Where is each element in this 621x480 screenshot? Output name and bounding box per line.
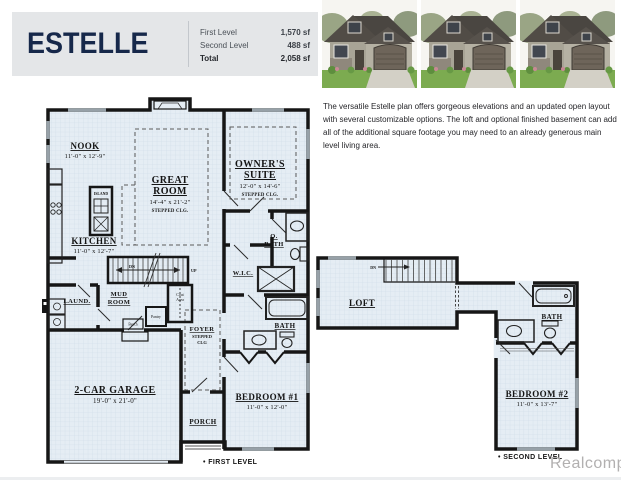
table-row-first-level: First Level 1,570 sf <box>200 26 310 39</box>
great-room-dims: 14'-4" x 21'-2" <box>150 199 191 206</box>
elevation-rendering-2 <box>421 0 516 88</box>
great-room-label-2: ROOM <box>153 186 187 197</box>
realcomp-watermark: Realcomp <box>550 455 621 473</box>
great-room-ceiling: STEPPED CLG. <box>152 209 189 214</box>
bench-label: Bench <box>128 323 137 327</box>
first-level-floorplan: DN UP <box>28 95 312 467</box>
loft-label: LOFT <box>349 298 375 308</box>
header-divider <box>188 21 189 67</box>
second-level-floorplan: DN LOFT BATH BEDROOM #2 11'-0" x 13'-7" <box>312 250 612 460</box>
elevation-rendering-1 <box>322 0 417 88</box>
row-value: 1,570 sf <box>281 26 310 39</box>
bath-label-l2: BATH <box>542 313 563 321</box>
garage-dims: 19'-0" x 21'-0" <box>93 397 137 405</box>
nook-label: NOOK <box>70 141 99 151</box>
wic-label: W.I.C. <box>233 270 253 277</box>
owners-bath-label-1: O. <box>270 233 277 240</box>
plan-description: The versatile Estelle plan offers gorgeo… <box>323 100 617 152</box>
garage-label: 2-CAR GARAGE <box>74 385 155 396</box>
owners-bath-label-2: BATH <box>264 241 284 248</box>
first-level-caption: • FIRST LEVEL <box>203 459 257 466</box>
bedroom1-label: BEDROOM #1 <box>236 392 299 402</box>
bath-label: BATH <box>275 322 296 330</box>
laundry-label: LAUND. <box>63 298 90 305</box>
stairs-dn-label-l2: DN <box>370 265 376 270</box>
foyer-ceiling-2: CLG <box>197 340 207 345</box>
row-label: First Level <box>200 26 237 39</box>
house-illustration-2 <box>421 0 516 88</box>
table-row-second-level: Second Level 488 sf <box>200 39 310 52</box>
nook-dims: 11'-0" x 12'-9" <box>65 153 106 160</box>
porch-steps <box>185 446 221 449</box>
foyer-ceiling-1: STEPPED <box>192 334 212 339</box>
garage-door <box>64 460 168 463</box>
mud-room-label-2: ROOM <box>108 299 131 306</box>
owners-suite-label-1: OWNER'S <box>235 159 285 170</box>
house-illustration-3 <box>520 0 615 88</box>
stairs-dn-label: DN <box>129 264 135 269</box>
owners-suite-ceiling: STEPPED CLG. <box>242 193 279 198</box>
area-table: First Level 1,570 sf Second Level 488 sf… <box>200 26 310 65</box>
mud-room-label-1: MUD <box>111 291 128 298</box>
bullet-icon: • <box>203 459 206 466</box>
first-level-caption-text: FIRST LEVEL <box>208 459 257 466</box>
header-band: ESTELLE First Level 1,570 sf Second Leve… <box>12 12 318 76</box>
bedroom1-dims: 11'-0" x 12'-0" <box>247 404 288 411</box>
porch-label: PORCH <box>189 418 216 426</box>
row-label: Total <box>200 52 219 65</box>
bullet-icon: • <box>498 454 501 461</box>
bedroom2-dims: 11'-0" x 13'-7" <box>517 401 558 408</box>
plan-title: ESTELLE <box>27 27 149 61</box>
row-label: Second Level <box>200 39 248 52</box>
owners-suite-dims: 12'-0" x 14'-6" <box>240 183 281 190</box>
elevation-rendering-3 <box>520 0 615 88</box>
great-room-label-1: GREAT <box>152 175 189 186</box>
bedroom2-label: BEDROOM #2 <box>506 389 569 399</box>
pantry-label: Pantry <box>151 315 161 319</box>
kitchen-label: KITCHEN <box>71 236 116 246</box>
foyer-label: FOYER <box>190 326 215 333</box>
owners-suite-label-2: SUITE <box>244 170 276 181</box>
kitchen-dims: 11'-0" x 12'-7" <box>74 248 115 255</box>
table-row-total: Total 2,058 sf <box>200 52 310 65</box>
stairs-up-label: UP <box>191 268 197 273</box>
island-label: ISLAND <box>94 192 109 196</box>
coat-area-label-2: Area <box>176 297 184 302</box>
row-value: 488 sf <box>287 39 310 52</box>
house-illustration-1 <box>322 0 417 88</box>
row-value: 2,058 sf <box>281 52 310 65</box>
